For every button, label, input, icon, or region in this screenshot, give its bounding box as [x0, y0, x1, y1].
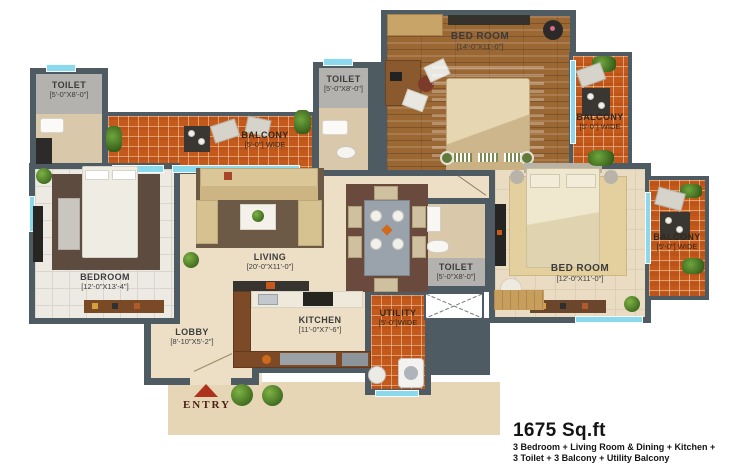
window-utility — [375, 390, 419, 397]
plant-bedroom-left — [36, 168, 52, 184]
balcony-top-name: BALCONY — [241, 130, 288, 140]
pillow-right-2 — [566, 174, 596, 188]
wardrobe-bedroom-right — [495, 204, 506, 266]
utility-name: UTILITY — [380, 308, 417, 318]
runner-item-3 — [134, 303, 140, 309]
accent-pillow — [224, 172, 232, 180]
decor-flowers — [550, 26, 555, 31]
balcony-top-dims: [5'-0"] WIDE — [215, 140, 315, 150]
wall-lobby-bottom-left — [144, 378, 190, 385]
label-living: LIVING [20'-0"X11'-0"] — [210, 252, 330, 272]
wall-toilet-bedroom-gap — [374, 62, 381, 176]
kitchen-dims: [11'-0"X7'-6"] — [270, 325, 370, 335]
wood-mat — [494, 290, 544, 310]
label-balcony-top: BALCONY [5'-0"] WIDE — [215, 130, 315, 150]
floor-plan: TOILET [5'-0"X8'-0"] BALCONY [5'-0"] WID… — [0, 0, 736, 471]
plate-3 — [370, 238, 382, 250]
label-utility: UTILITY [5'-0"]WIDE — [365, 308, 431, 328]
kitchen-decor-flower — [262, 355, 271, 364]
runner-item-2 — [112, 303, 118, 309]
kitchen-name: KITCHEN — [299, 315, 342, 325]
bedroom-right-name: BED ROOM — [551, 263, 609, 274]
bedroom-left-dims: [12'-0"X13'-4"] — [45, 282, 165, 292]
bench — [58, 198, 80, 250]
tree-2 — [262, 385, 283, 406]
tv-decor — [266, 282, 275, 289]
kitchen-sink — [258, 294, 278, 305]
dining-chair-bottom — [374, 278, 398, 292]
nightstand-left — [510, 170, 524, 184]
toilet-mid-shower — [427, 206, 441, 232]
label-toilet-top-middle: TOILET [5'-0"X8'-0"] — [315, 74, 372, 94]
label-bedroom-top: BED ROOM [14'-0"X11'-0"] — [420, 32, 540, 52]
sofa-back — [200, 168, 318, 188]
pillow-left-2 — [112, 170, 136, 180]
toilet-tm-dims: [5'-0"X8'-0"] — [315, 84, 372, 94]
entry-label: ENTRY — [172, 399, 242, 411]
lobby-dims: [8'-10"X5'-2"] — [152, 337, 232, 347]
laptop — [390, 72, 402, 81]
dining-chair-left-1 — [348, 206, 362, 228]
toilet-mid-wc — [427, 240, 449, 253]
table-plant — [252, 210, 264, 222]
toilet-tl-dims: [5'-0"X8'-0"] — [34, 90, 104, 100]
dining-chair-top — [374, 186, 398, 200]
label-bedroom-right: BED ROOM [12'-0"X11'-0"] — [520, 264, 640, 284]
fridge — [342, 353, 368, 366]
toilet-tm-sink — [336, 146, 356, 159]
living-dims: [20'-0"X11'-0"] — [210, 262, 330, 272]
sofa-left-arm — [196, 200, 218, 244]
summary-line-1: 3 Bedroom + Living Room & Dining + Kitch… — [513, 442, 715, 453]
toilet-tm-name: TOILET — [326, 74, 360, 84]
summary-line-2: 3 Toilet + 3 Balcony + Utility Balcony — [513, 453, 715, 464]
kitchen-bench — [280, 353, 336, 365]
washing-machine-door — [404, 366, 418, 380]
round-cushion-left — [440, 151, 454, 165]
plate-4 — [392, 238, 404, 250]
label-balcony-right: BALCONY [5'-0"] WIDE — [647, 232, 707, 252]
label-bedroom-left: BEDROOM [12'-0"X13'-4"] — [45, 272, 165, 292]
window-toilet-top-middle — [323, 58, 353, 66]
pillow-striped-2 — [478, 153, 498, 162]
dining-chair-left-2 — [348, 236, 362, 258]
label-balcony-top-right: BALCONY [5'-0"] WIDE — [570, 112, 630, 132]
plant-bedroom-right — [624, 296, 640, 312]
dining-chair-right-1 — [412, 206, 426, 228]
pillow-right-1 — [530, 174, 560, 188]
bedroom-right-dims: [12'-0"X11'-0"] — [520, 274, 640, 284]
utility-bucket — [368, 366, 386, 384]
balcony-top-plate-2 — [198, 138, 205, 145]
entry-arrow-icon — [194, 384, 218, 397]
headboard-top-bedroom — [446, 162, 530, 170]
toilet-tm-basin — [322, 120, 348, 135]
plan-summary: 1675 Sq.ft 3 Bedroom + Living Room & Din… — [513, 420, 715, 464]
window-bedroom-right-south — [575, 316, 643, 323]
wardrobe-bedroom-left — [33, 206, 43, 262]
balcony-tr-dims: [5'-0"] WIDE — [570, 122, 630, 132]
wardrobe-decor — [497, 230, 502, 235]
balcony-r-name: BALCONY — [653, 232, 700, 242]
pillow-striped-1 — [452, 153, 472, 162]
plate-1 — [370, 210, 382, 222]
dining-chair-right-2 — [412, 236, 426, 258]
toilet-mid-name: TOILET — [439, 262, 473, 272]
nightstand-right — [604, 170, 618, 184]
cooktop — [303, 292, 333, 306]
tv-console-top-bedroom — [448, 15, 530, 25]
shaft-hatch — [424, 292, 484, 320]
bush-balcony-tr-2 — [588, 150, 614, 166]
window-toilet-top-left — [46, 64, 76, 72]
plant-living — [183, 252, 199, 268]
bedroom-left-name: BEDROOM — [80, 272, 130, 282]
lobby-name: LOBBY — [175, 327, 209, 337]
bush-balcony-r-2 — [682, 258, 704, 274]
toilet-tl-shower-panel — [36, 138, 52, 164]
runner-item-1 — [92, 303, 98, 309]
plate-2 — [392, 210, 404, 222]
balcony-r-dims: [5'-0"] WIDE — [647, 242, 707, 252]
sofa-right-arm — [298, 200, 322, 246]
balcony-tr-plate-1 — [587, 93, 594, 100]
bush-balcony-top-1 — [106, 126, 122, 152]
balcony-tr-plate-2 — [598, 102, 605, 109]
label-toilet-top-left: TOILET [5'-0"X8'-0"] — [34, 80, 104, 100]
bedroom-top-name: BED ROOM — [451, 31, 509, 42]
sofa-seats — [200, 186, 318, 200]
label-lobby: LOBBY [8'-10"X5'-2"] — [152, 327, 232, 347]
balcony-top-table — [184, 126, 210, 152]
bedroom-top-dims: [14'-0"X11'-0"] — [420, 42, 540, 52]
utility-dims: [5'-0"]WIDE — [365, 318, 431, 328]
label-toilet-middle: TOILET [5'-0"X8'-0"] — [423, 262, 489, 282]
runner-r-item-3 — [582, 303, 588, 309]
living-name: LIVING — [254, 252, 286, 262]
label-kitchen: KITCHEN [11'-0"X7'-6"] — [270, 315, 370, 335]
wall-kitchen-step — [252, 366, 259, 385]
balcony-tr-name: BALCONY — [576, 112, 623, 122]
area-text: 1675 Sq.ft — [513, 420, 715, 442]
wall-duct-mass — [428, 318, 490, 375]
balcony-r-plate-1 — [665, 217, 672, 224]
toilet-mid-dims: [5'-0"X8'-0"] — [423, 272, 489, 282]
runner-r-item-2 — [560, 303, 566, 309]
pillow-left-1 — [85, 170, 109, 180]
balcony-top-plate-1 — [188, 130, 195, 137]
window-bedroom-right-east — [645, 192, 651, 264]
toilet-tl-basin — [40, 118, 64, 133]
toilet-tl-name: TOILET — [52, 80, 86, 90]
